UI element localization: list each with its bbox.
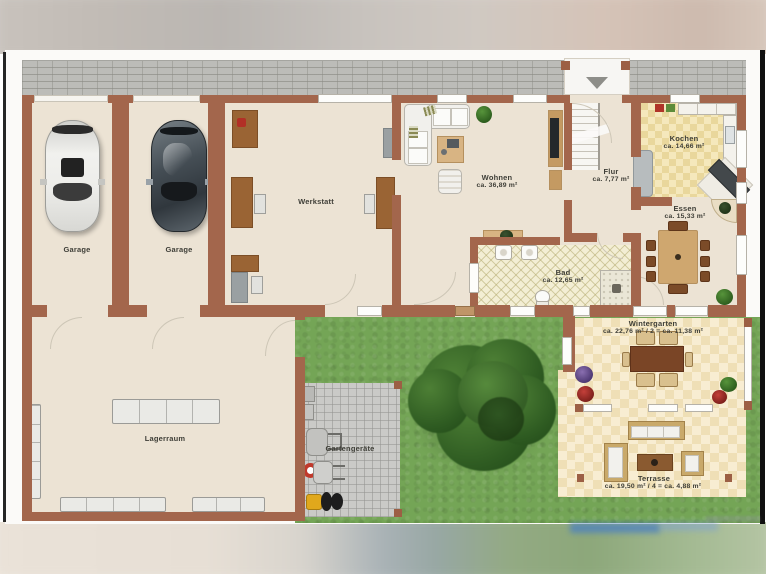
- white-car: [45, 120, 100, 232]
- paving-post-bottom: [394, 509, 402, 517]
- dining-chair: [668, 284, 688, 294]
- terrace-armchair-right: [681, 451, 704, 476]
- wall-werkstatt-divider: [208, 103, 225, 305]
- shelf-cell: [193, 498, 216, 511]
- workshop-cabinet: [231, 272, 248, 303]
- shelf-unit-bottom-1: [60, 497, 166, 512]
- wall-segment: [382, 305, 455, 317]
- kitchen-counter-top: [678, 103, 737, 115]
- wall-flur-east-a: [631, 103, 641, 157]
- terrace-armchair-left-cushion: [608, 447, 623, 478]
- wall-garage-divider: [112, 103, 129, 305]
- window: [573, 306, 590, 316]
- wall-lagerraum-east-a: [295, 305, 305, 320]
- shelf-cell: [139, 400, 166, 423]
- room-area-wohnen: ca. 36,89 m²: [477, 182, 518, 189]
- white-car-rear-window: [52, 125, 92, 134]
- room-area-bad: ca. 12,65 m²: [543, 277, 584, 284]
- wall-wohnen-west-a: [392, 103, 401, 160]
- sofa-cushion-4: [408, 148, 428, 164]
- wall-segment: [22, 305, 47, 317]
- terrasse-floor-left: [558, 370, 575, 497]
- wall-segment: [200, 95, 318, 103]
- window: [318, 94, 392, 103]
- kitchen-appliance-green: [666, 104, 675, 112]
- wall-segment: [200, 305, 325, 317]
- room-label-garage2: Garage: [165, 245, 192, 254]
- driveway-paving: [22, 60, 746, 96]
- shelf-unit-bottom-2: [192, 497, 265, 512]
- blurred-logo-smudge: [570, 523, 660, 533]
- workbench-2: [231, 177, 253, 228]
- wall-segment: [108, 95, 133, 103]
- shelf-cell: [216, 498, 240, 511]
- window: [437, 94, 467, 103]
- paving-post-top: [394, 381, 402, 389]
- dining-chair: [700, 271, 710, 282]
- dark-car-mirror-left: [146, 179, 154, 185]
- room-label-gartengeraete: Gartengeräte: [325, 444, 374, 453]
- terrace-post-right: [725, 474, 732, 482]
- room-label-bad: Bad: [556, 268, 571, 277]
- dining-chair: [646, 256, 656, 267]
- flower-pot-red-left: [577, 386, 594, 402]
- glass-partition: [583, 404, 612, 412]
- corner-shelf-plant: [719, 202, 731, 214]
- wintergarten-chair-side: [685, 352, 693, 367]
- dark-car: [151, 120, 207, 232]
- room-label-garage1: Garage: [63, 245, 90, 254]
- kitchen-sink: [725, 126, 735, 144]
- room-label-lagerraum: Lagerraum: [145, 434, 186, 443]
- ride-mower-wheel-2: [331, 493, 343, 510]
- window: [510, 306, 535, 316]
- wohnen-plant: [476, 106, 492, 123]
- tv-screen: [550, 118, 559, 158]
- window: [670, 94, 700, 103]
- wall-segment: [392, 95, 437, 103]
- shelf-cell: [113, 400, 139, 423]
- terrace-table-bowl: [651, 459, 658, 466]
- shelf-cell: [192, 400, 219, 423]
- workbench-1: [232, 110, 258, 148]
- watermark-smudge: [706, 516, 760, 522]
- glass-partition: [685, 404, 713, 412]
- window: [736, 130, 747, 168]
- white-car-windshield: [53, 183, 91, 202]
- wall-segment: [467, 95, 513, 103]
- wintergarten-chair-side: [622, 352, 630, 367]
- floorplan-image: Garage Garage Werkstatt Wohnen ca. 36,89…: [0, 0, 766, 574]
- flower-pot-red-right: [712, 390, 727, 404]
- shelf-cell: [139, 498, 165, 511]
- wall-segment: [547, 95, 570, 103]
- workbench-4-stool: [364, 194, 375, 214]
- flower-pot-purple: [575, 366, 593, 383]
- terrace-sofa-cushions: [631, 426, 680, 438]
- glass-post: [744, 401, 752, 410]
- mower-2-handle-b: [333, 478, 345, 480]
- room-area-flur: ca. 7,77 m²: [593, 176, 630, 183]
- shelf-cell: [113, 498, 139, 511]
- armchair: [438, 169, 462, 194]
- tree-canopy-dark: [478, 397, 524, 441]
- essen-plant: [716, 289, 733, 305]
- glass-post: [744, 318, 752, 327]
- wall-segment: [667, 305, 675, 317]
- window: [736, 235, 747, 275]
- sofa-cushion-2: [451, 108, 468, 126]
- white-car-mirror-left: [40, 179, 47, 185]
- blurred-top-gradient: [0, 0, 766, 54]
- wall-lagerraum-east-b: [295, 357, 305, 521]
- wall-segment: [108, 305, 147, 317]
- wall-stair-west-a: [564, 103, 572, 170]
- shelf-cell: [86, 498, 112, 511]
- wall-bad-east: [631, 240, 641, 307]
- dining-table-center: [675, 254, 681, 260]
- wintergarten-chair: [659, 373, 678, 387]
- small-desk: [549, 170, 562, 190]
- dark-car-rear-window: [160, 127, 199, 136]
- terrace-armchair-left: [604, 443, 628, 482]
- workbench-3-stool: [251, 276, 263, 294]
- wall-segment: [590, 305, 633, 317]
- terrace-armchair-right-cushion: [685, 455, 699, 472]
- entrance-post-right: [621, 61, 630, 70]
- glass-partition: [648, 404, 678, 412]
- window: [736, 182, 747, 204]
- wall-segment: [622, 95, 670, 103]
- terrace-sofa: [628, 421, 685, 440]
- shelf-unit-center: [112, 399, 220, 424]
- window: [675, 306, 708, 316]
- wall-wohnen-west-b: [392, 195, 401, 305]
- mower-2-handle-a: [333, 465, 345, 467]
- dining-chair: [646, 271, 656, 282]
- wall-flur-south-a: [564, 233, 597, 242]
- room-label-wintergarten: Wintergarten: [629, 319, 678, 328]
- bathroom-sink-2: [521, 245, 538, 260]
- room-label-flur: Flur: [604, 167, 619, 176]
- entrance-arrow-icon: [586, 77, 608, 89]
- table-item: [441, 149, 447, 155]
- wall-segment: [708, 305, 746, 317]
- room-label-essen: Essen: [673, 204, 696, 213]
- dining-chair: [668, 221, 688, 231]
- shelf-cell: [61, 498, 86, 511]
- glass-post: [575, 404, 583, 412]
- room-label-werkstatt: Werkstatt: [298, 197, 334, 206]
- glass-door: [633, 306, 667, 316]
- wooden-door: [455, 306, 475, 316]
- bathroom-sink-1: [495, 245, 512, 260]
- room-area-terrasse: ca. 19,50 m² / 4 = ca. 4,88 m²: [605, 483, 702, 490]
- ride-mower-body: [306, 494, 322, 510]
- wall-bad-north: [470, 237, 560, 245]
- dining-chair: [700, 256, 710, 267]
- entrance-post-left: [561, 61, 570, 70]
- white-car-mirror-right: [98, 179, 105, 185]
- wintergarten-table: [630, 346, 684, 372]
- garden-tree: [408, 335, 560, 480]
- room-area-wintergarten: ca. 22,76 m² / 2 = ca. 11,38 m²: [603, 328, 703, 335]
- dining-chair: [700, 240, 710, 251]
- window: [357, 306, 382, 316]
- lawn-mower-2: [313, 461, 333, 484]
- dark-car-windshield: [161, 182, 198, 202]
- sofa-pillow-2: [409, 126, 418, 138]
- left-border-line: [3, 52, 6, 522]
- white-car-sunroof: [61, 158, 84, 177]
- room-label-kochen: Kochen: [670, 134, 699, 143]
- wall-kochen-essen: [631, 197, 672, 206]
- room-area-essen: ca. 15,33 m²: [665, 213, 706, 220]
- room-label-wohnen: Wohnen: [482, 173, 513, 182]
- garage-door-2: [133, 95, 200, 102]
- workbench-2-stool: [254, 194, 266, 214]
- right-border-line: [760, 50, 765, 524]
- window: [513, 94, 547, 103]
- wall-lagerraum-south: [22, 512, 305, 521]
- kitchen-appliance-red: [655, 104, 664, 112]
- dining-chair: [646, 240, 656, 251]
- wintergarten-glass-east: [744, 318, 752, 410]
- laptop: [447, 139, 459, 148]
- workbench-tool-red: [237, 118, 246, 127]
- blurred-top-band: [0, 0, 766, 54]
- garage-door-1: [34, 95, 108, 102]
- wall-flur-south-b: [623, 233, 641, 242]
- window: [562, 337, 572, 365]
- wall-segment: [700, 95, 746, 103]
- window: [469, 263, 479, 293]
- room-area-kochen: ca. 14,66 m²: [664, 143, 705, 150]
- terrace-post-left: [577, 474, 584, 482]
- shelf-cell: [166, 400, 193, 423]
- room-label-terrasse: Terrasse: [638, 474, 670, 483]
- wall-segment: [475, 305, 510, 317]
- wall-stair-west-b: [564, 200, 572, 233]
- wintergarten-chair: [636, 373, 655, 387]
- dark-car-highlight: [163, 143, 193, 176]
- shower-drain: [612, 284, 621, 293]
- shelf-cell: [240, 498, 264, 511]
- blurred-logo-smudge-2: [660, 522, 718, 531]
- workbench-3: [231, 255, 259, 272]
